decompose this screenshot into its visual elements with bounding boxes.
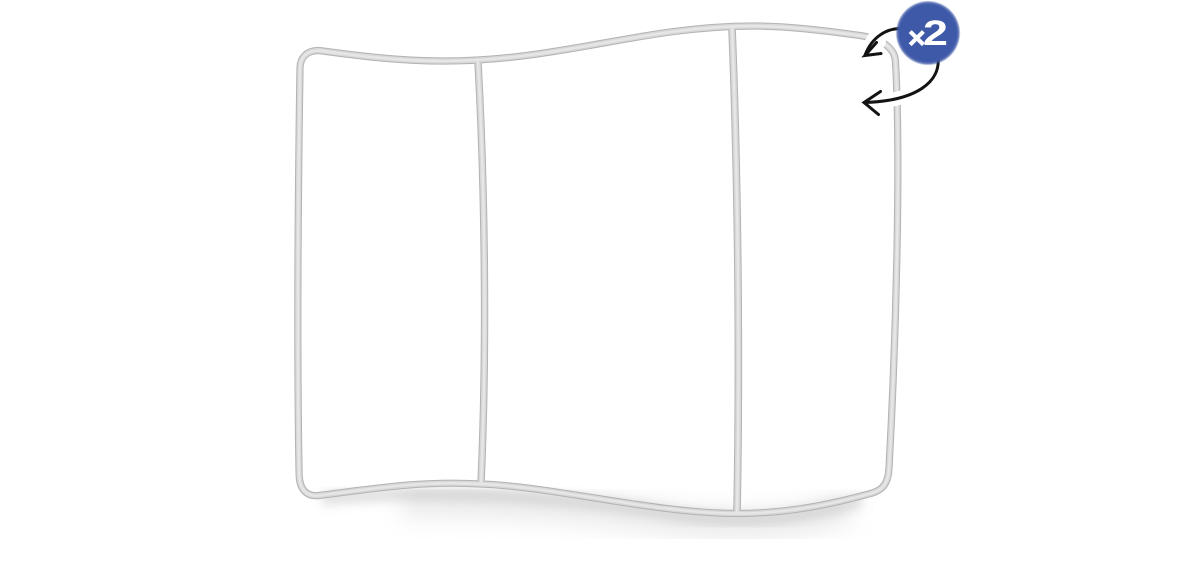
svg-text:2: 2: [923, 14, 948, 53]
